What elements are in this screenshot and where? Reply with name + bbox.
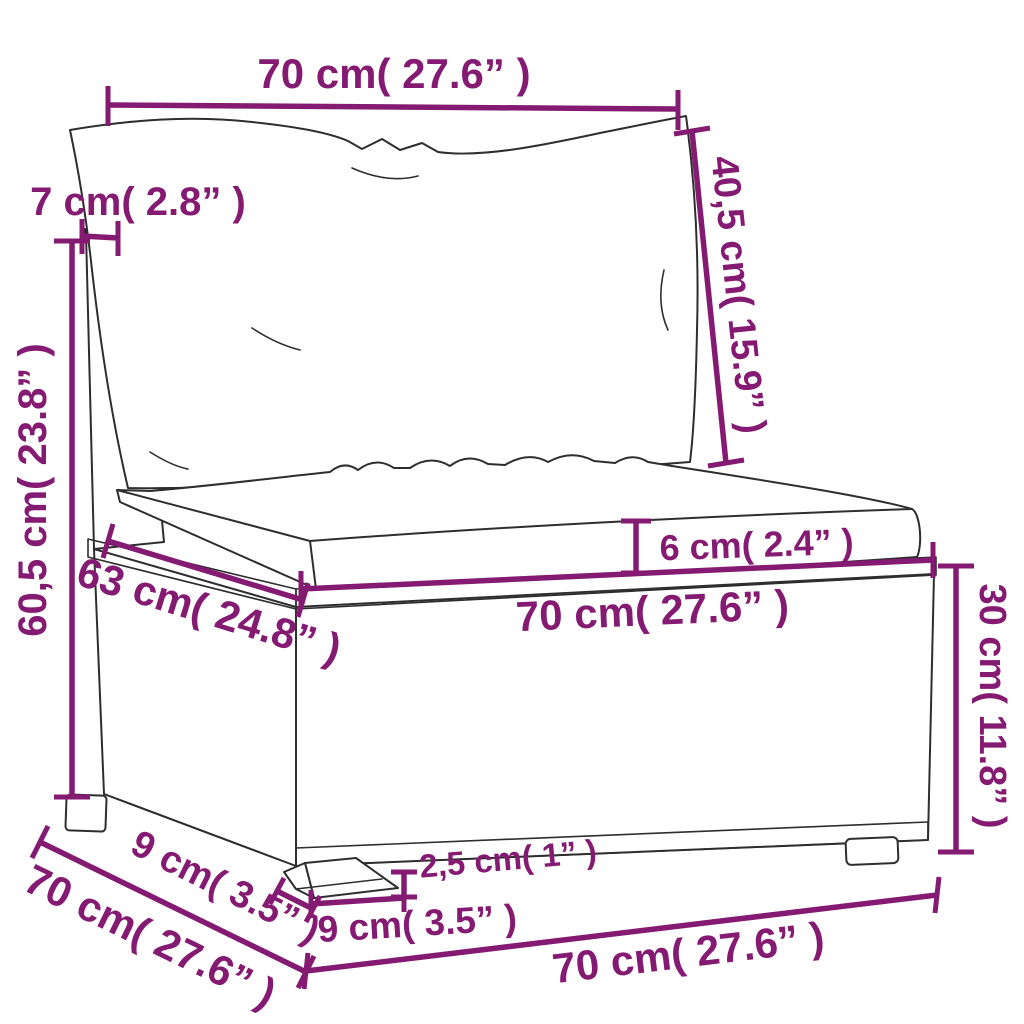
base-bottom-rail (296, 822, 928, 866)
dim-total-width-tick-left (304, 953, 308, 989)
total-height-label: 60,5 cm( 23.8” ) (11, 343, 55, 637)
back-cushion (70, 116, 698, 488)
dim-base-height: 30 cm( 11.8” ) (938, 566, 1013, 852)
product-dimension-diagram: 70 cm( 27.6” ) 40,5 cm( 15.9” ) 7 cm( 2.… (0, 0, 1024, 1024)
foot-height-label: 2,5 cm( 1” ) (418, 832, 598, 884)
seat-width-label: 70 cm( 27.6” ) (515, 581, 790, 640)
back-cushion-height-label: 40,5 cm( 15.9” ) (702, 154, 773, 436)
foot-front-left-top (305, 858, 398, 898)
dim-back-frame-thickness-line (82, 236, 118, 238)
foot-front-right (845, 837, 898, 865)
diagram-canvas: 70 cm( 27.6” ) 40,5 cm( 15.9” ) 7 cm( 2.… (0, 0, 1024, 1024)
sofa-illustration (65, 116, 936, 898)
dim-total-width-tick-right (935, 877, 939, 913)
dim-total-height: 60,5 cm( 23.8” ) (11, 241, 90, 797)
dim-back-cushion-width-line (108, 105, 678, 109)
foot-front-left (284, 858, 398, 898)
dim-back-cushion-height-tick-bottom (708, 460, 744, 466)
back-frame-thickness-label: 7 cm( 2.8” ) (30, 180, 246, 224)
back-cushion-width-label: 70 cm( 27.6” ) (257, 50, 530, 97)
base-height-label: 30 cm( 11.8” ) (971, 583, 1013, 828)
foot-width-label: 9 cm( 3.5” ) (316, 897, 518, 950)
dim-foot-width-line (311, 898, 404, 904)
foot-back-left (65, 794, 106, 831)
seat-cushion-thickness-label: 6 cm( 2.4” ) (659, 521, 854, 569)
